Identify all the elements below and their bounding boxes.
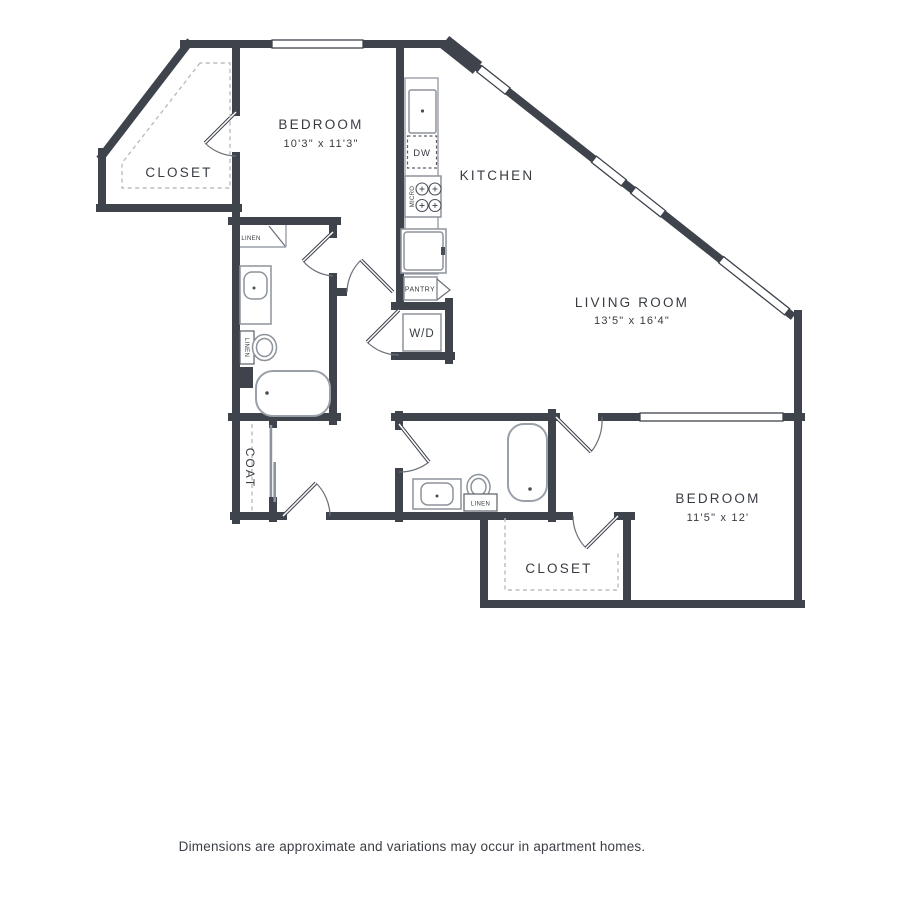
kitchen-sink-icon bbox=[401, 229, 446, 273]
closet1-door bbox=[205, 112, 236, 156]
closet2-dashed-outline bbox=[505, 518, 618, 590]
bath1-vanity-sink-icon bbox=[240, 266, 271, 324]
closet2-door bbox=[573, 516, 618, 548]
range-microwave-icon: MICRO bbox=[405, 176, 441, 217]
window-diagonal-3 bbox=[631, 187, 666, 217]
bath2-linen-label: LINEN bbox=[471, 502, 490, 508]
washer-dryer-icon: W/D bbox=[403, 314, 441, 351]
bath1-wall-stub bbox=[232, 367, 253, 388]
refrigerator-icon bbox=[409, 90, 436, 133]
bath1-bathtub-icon bbox=[256, 371, 330, 416]
living-room-dims: 13'5" x 16'4" bbox=[594, 315, 670, 327]
coat-closet-label: COAT bbox=[243, 448, 257, 488]
bedroom2-label: BEDROOM bbox=[675, 491, 760, 506]
bedroom1-door bbox=[347, 260, 393, 292]
pantry-icon: PANTRY bbox=[404, 277, 450, 300]
floor-plan-page: DW MICRO PANTRY W/D LINEN LINEN bbox=[0, 0, 900, 900]
floor-plan: DW MICRO PANTRY W/D LINEN LINEN bbox=[0, 0, 900, 900]
bedroom1-label: BEDROOM bbox=[278, 117, 363, 132]
bath2-linen-cabinet: LINEN bbox=[464, 494, 497, 511]
window-diagonal-4 bbox=[719, 257, 790, 315]
living-room-label: LIVING ROOM bbox=[575, 295, 689, 310]
window-bedroom2 bbox=[640, 413, 783, 421]
kitchen-label: KITCHEN bbox=[460, 168, 535, 183]
bedroom2-dims: 11'5" x 12' bbox=[687, 512, 750, 524]
window-diagonal-1 bbox=[477, 66, 510, 95]
washer-dryer-label: W/D bbox=[409, 328, 434, 340]
bath2-vanity-sink-icon bbox=[413, 479, 461, 509]
window-bedroom1 bbox=[272, 40, 363, 48]
dishwasher-label: DW bbox=[413, 148, 430, 159]
closet2-label: CLOSET bbox=[525, 561, 592, 576]
bath1-linen-cabinet-label: LINEN bbox=[243, 338, 249, 357]
coat-sliding-door bbox=[270, 425, 276, 502]
bathroom2-door bbox=[399, 424, 429, 472]
dishwasher-icon: DW bbox=[408, 136, 437, 168]
bath1-linen-closet: LINEN bbox=[240, 225, 286, 247]
bathroom1-door bbox=[303, 232, 333, 276]
window-diagonal-2 bbox=[591, 156, 626, 186]
bedroom1-dims: 10'3" x 11'3" bbox=[283, 138, 358, 150]
bath1-linen-label: LINEN bbox=[241, 236, 260, 242]
closet1-label: CLOSET bbox=[145, 165, 212, 180]
disclaimer-text: Dimensions are approximate and variation… bbox=[179, 839, 646, 854]
entry-door bbox=[283, 483, 330, 516]
bath2-bathtub-icon bbox=[508, 424, 547, 501]
washer-dryer-door bbox=[367, 310, 399, 355]
pantry-label: PANTRY bbox=[405, 287, 435, 294]
bedroom2-door bbox=[556, 417, 602, 452]
bath1-toilet-icon bbox=[253, 335, 277, 361]
microwave-label: MICRO bbox=[410, 186, 416, 208]
